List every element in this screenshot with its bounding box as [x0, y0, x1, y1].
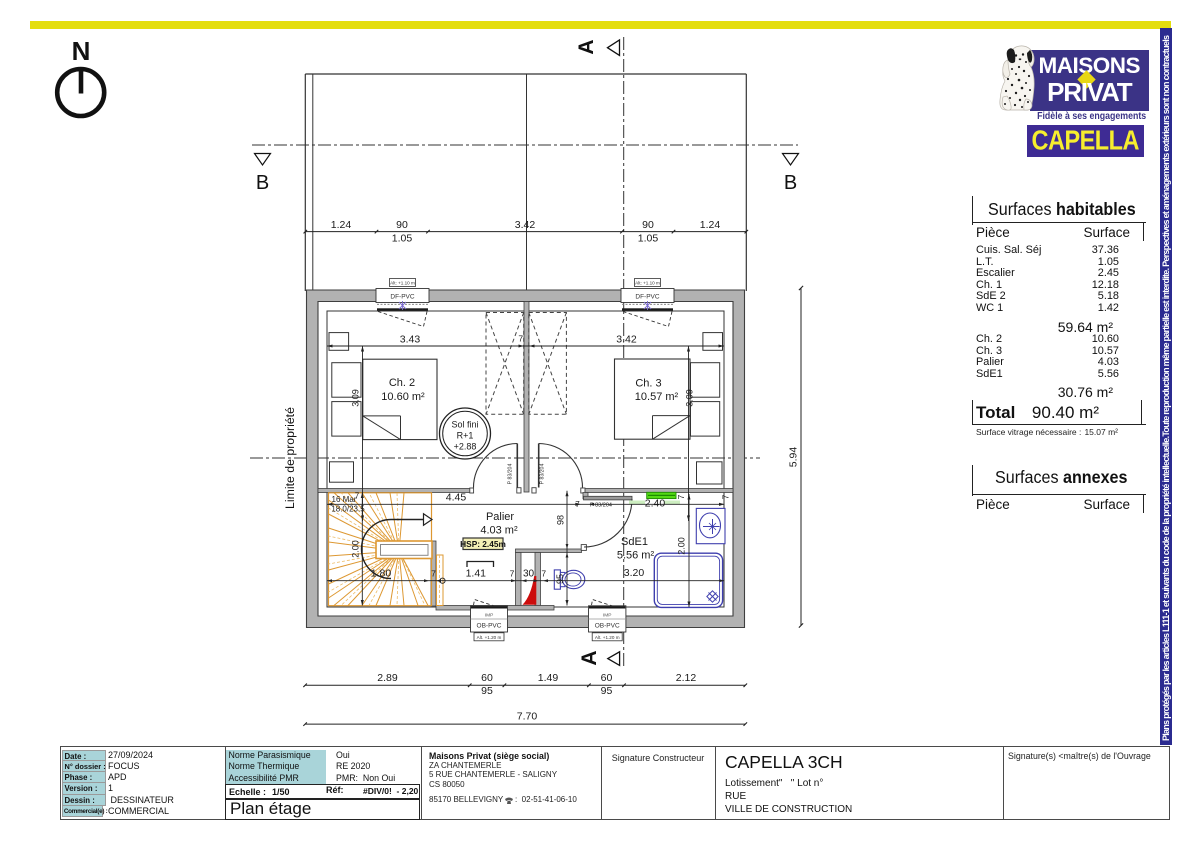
svg-text:OB-PVC: OB-PVC	[595, 623, 620, 630]
svg-text:P 83/204: P 83/204	[590, 503, 612, 509]
svg-text:IMP: IMP	[603, 613, 612, 619]
svg-text:30: 30	[523, 569, 535, 580]
svg-text:3.42: 3.42	[515, 219, 536, 231]
svg-text:Ch. 3: Ch. 3	[635, 378, 661, 390]
svg-text:60: 60	[601, 672, 613, 684]
svg-text:60: 60	[481, 672, 493, 684]
svg-text:2.89: 2.89	[377, 672, 398, 684]
svg-text:Palier: Palier	[486, 511, 514, 523]
svg-text:7: 7	[510, 569, 515, 579]
svg-text:98: 98	[556, 515, 566, 525]
svg-text:DF-PVC: DF-PVC	[635, 294, 660, 301]
svg-text:Alt. +1.20 m: Alt. +1.20 m	[477, 635, 502, 640]
svg-text:10.60 m²: 10.60 m²	[381, 391, 425, 403]
svg-text:1.80: 1.80	[371, 568, 392, 580]
svg-text:16 Mar: 16 Mar	[332, 495, 357, 504]
svg-text:3.09: 3.09	[351, 389, 361, 407]
svg-text:R+1: R+1	[457, 431, 474, 441]
svg-text:Plans protégés par les article: Plans protégés par les articles L111-1 e…	[1161, 35, 1171, 741]
svg-text:P 83/204: P 83/204	[540, 464, 546, 485]
svg-text:7: 7	[721, 494, 731, 499]
svg-text:90: 90	[396, 219, 408, 231]
svg-text:1.24: 1.24	[331, 219, 352, 231]
svg-text:4.45: 4.45	[446, 492, 467, 504]
svg-text:18.0/23.5: 18.0/23.5	[331, 505, 365, 514]
svg-text:5.56 m²: 5.56 m²	[617, 550, 655, 562]
svg-text:Limite de propriété: Limite de propriété	[283, 407, 297, 509]
svg-text:SdE1: SdE1	[621, 536, 648, 548]
svg-text:Ch. 2: Ch. 2	[389, 377, 415, 389]
svg-text:HSP: 2.45m: HSP: 2.45m	[460, 539, 506, 549]
svg-text:3.42: 3.42	[616, 334, 637, 346]
svg-text:95: 95	[555, 574, 565, 584]
svg-text:DF-PVC: DF-PVC	[390, 294, 415, 301]
svg-text:10.57 m²: 10.57 m²	[635, 391, 679, 403]
svg-text:2.00: 2.00	[677, 537, 687, 555]
svg-text:1.41: 1.41	[466, 568, 487, 580]
svg-text:90: 90	[642, 219, 654, 231]
svg-text:7: 7	[518, 334, 523, 344]
svg-text:B: B	[256, 172, 269, 194]
svg-text:3.20: 3.20	[624, 567, 645, 579]
svg-text:7: 7	[541, 569, 546, 579]
svg-text:7: 7	[355, 492, 360, 501]
svg-text:IMP: IMP	[485, 613, 494, 619]
svg-text:A: A	[575, 39, 598, 54]
svg-text:+2.88: +2.88	[454, 442, 477, 452]
svg-text:2.12: 2.12	[676, 672, 697, 684]
svg-text:1.24: 1.24	[700, 219, 721, 231]
svg-text:7.70: 7.70	[517, 711, 538, 723]
svg-text:1.05: 1.05	[392, 233, 413, 245]
svg-text:P 83/204: P 83/204	[508, 464, 514, 485]
svg-text:Alt: +1.10 m: Alt: +1.10 m	[635, 281, 660, 286]
svg-text:1.49: 1.49	[538, 672, 559, 684]
svg-text:Alt: +1.10 m: Alt: +1.10 m	[390, 281, 415, 286]
svg-text:3.09: 3.09	[685, 389, 695, 407]
svg-text:4.03 m²: 4.03 m²	[480, 525, 518, 537]
svg-text:A: A	[578, 650, 601, 665]
svg-text:2.00: 2.00	[351, 540, 361, 558]
svg-text:7: 7	[431, 569, 436, 579]
svg-text:95: 95	[601, 685, 613, 697]
svg-text:B: B	[784, 172, 797, 194]
svg-text:5.94: 5.94	[788, 447, 800, 468]
svg-text:7: 7	[575, 500, 580, 509]
svg-text:3.43: 3.43	[400, 334, 421, 346]
svg-text:1.05: 1.05	[638, 233, 659, 245]
svg-text:N: N	[72, 36, 91, 66]
svg-text:2.40: 2.40	[645, 498, 666, 510]
svg-text:OB-PVC: OB-PVC	[477, 623, 502, 630]
svg-text:Alt. +1.20 m: Alt. +1.20 m	[595, 635, 620, 640]
svg-text:Sol fini: Sol fini	[451, 420, 478, 430]
svg-text:7: 7	[676, 494, 686, 499]
svg-text:95: 95	[481, 685, 493, 697]
